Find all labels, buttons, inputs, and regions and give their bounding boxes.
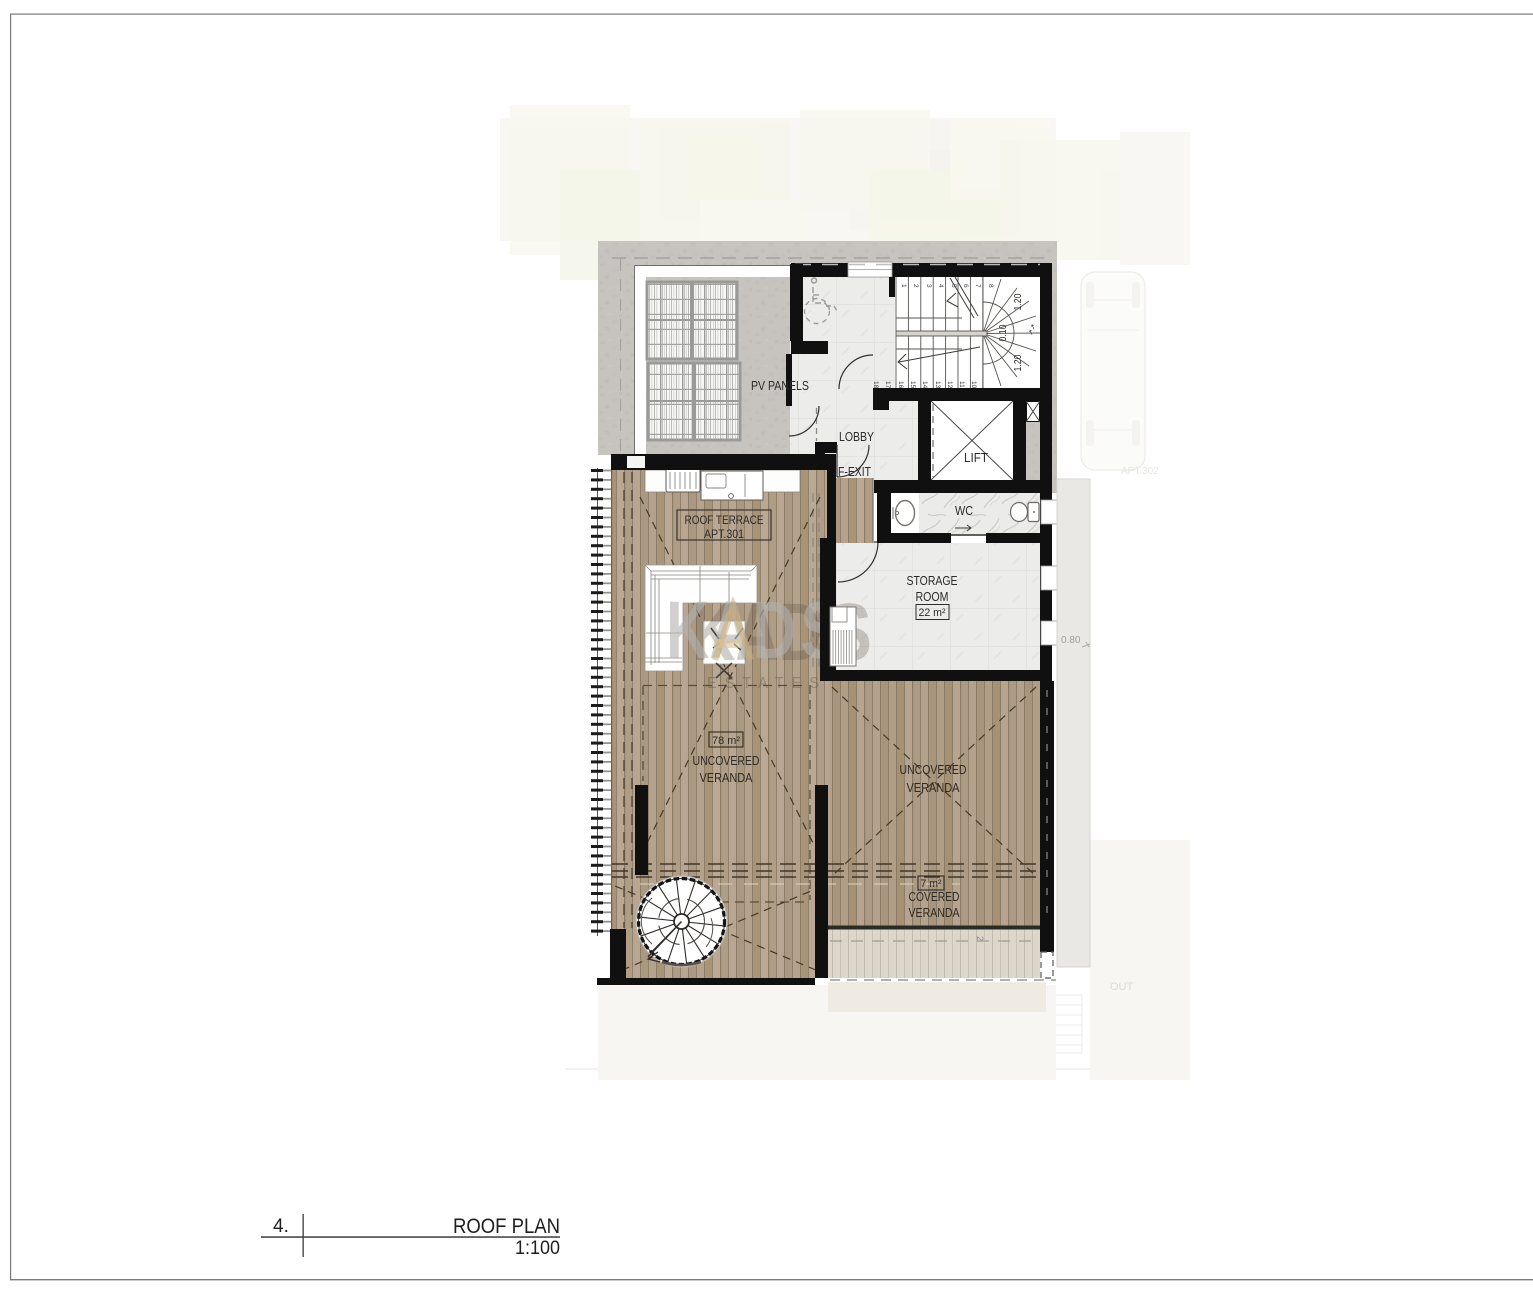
svg-text:6: 6 [962, 284, 969, 288]
svg-text:OUT: OUT [1110, 981, 1134, 993]
svg-text:7 m²: 7 m² [921, 878, 942, 890]
svg-text:0.10: 0.10 [998, 324, 1009, 341]
svg-text:APT.302: APT.302 [1121, 466, 1159, 477]
svg-text:8: 8 [987, 284, 994, 288]
svg-text:15: 15 [909, 381, 916, 389]
svg-text:3: 3 [925, 284, 932, 288]
svg-text:ROOF TERRACE: ROOF TERRACE [685, 513, 764, 527]
svg-text:1.20: 1.20 [1013, 354, 1024, 371]
svg-text:17: 17 [884, 381, 891, 389]
svg-text:14: 14 [921, 381, 928, 389]
svg-text:0.80: 0.80 [1061, 635, 1081, 646]
svg-text:7: 7 [974, 284, 981, 288]
svg-text:13: 13 [934, 381, 941, 389]
svg-text:ESTATES: ESTATES [707, 675, 827, 692]
svg-text:APT.301: APT.301 [704, 527, 744, 541]
svg-text:1.20: 1.20 [1013, 293, 1024, 310]
svg-text:1:100: 1:100 [515, 1238, 560, 1259]
svg-text:PV PANELS: PV PANELS [751, 379, 809, 393]
svg-text:UNCOVERED: UNCOVERED [900, 763, 967, 777]
svg-text:10: 10 [970, 381, 977, 389]
svg-text:11: 11 [958, 381, 965, 388]
svg-text:2: 2 [975, 936, 985, 941]
svg-text:VERANDA: VERANDA [907, 781, 961, 795]
svg-text:LIFT: LIFT [964, 451, 988, 465]
svg-text:5: 5 [950, 284, 957, 288]
svg-text:18: 18 [872, 381, 879, 389]
svg-text:STORAGE: STORAGE [907, 574, 958, 588]
svg-text:KAD: KAD [666, 585, 796, 676]
svg-text:VERANDA: VERANDA [909, 906, 961, 920]
svg-text:78 m²: 78 m² [712, 735, 740, 747]
svg-text:ROOF PLAN: ROOF PLAN [453, 1215, 560, 1238]
svg-text:ROOM: ROOM [916, 590, 949, 604]
svg-text:16: 16 [897, 381, 904, 389]
svg-text:VERANDA: VERANDA [700, 771, 754, 785]
svg-text:4: 4 [937, 284, 944, 288]
svg-text:2: 2 [912, 284, 919, 288]
svg-text:LOBBY: LOBBY [839, 430, 875, 444]
svg-text:22 m²: 22 m² [919, 607, 946, 619]
svg-text:F-EXIT: F-EXIT [838, 465, 871, 479]
svg-text:WC: WC [955, 504, 973, 518]
svg-text:12: 12 [946, 381, 953, 389]
svg-text:COVERED: COVERED [909, 890, 960, 904]
svg-text:1: 1 [900, 284, 907, 288]
svg-text:4.: 4. [273, 1216, 289, 1237]
svg-text:UNCOVERED: UNCOVERED [693, 754, 760, 768]
